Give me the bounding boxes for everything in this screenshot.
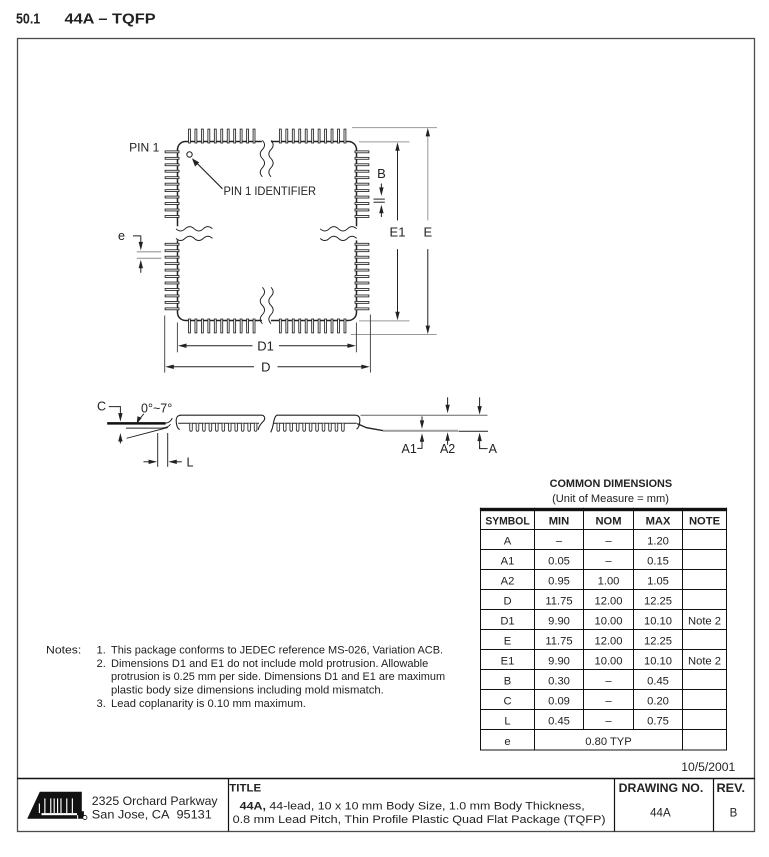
svg-text:COMMON DIMENSIONS: COMMON DIMENSIONS	[550, 478, 673, 490]
svg-text:0.80 TYP: 0.80 TYP	[585, 736, 631, 748]
svg-text:A: A	[489, 442, 498, 456]
svg-text:Note 2: Note 2	[688, 656, 721, 668]
svg-text:e: e	[504, 736, 510, 748]
svg-text:PIN 1: PIN 1	[129, 140, 160, 154]
svg-text:This package conforms to JEDEC: This package conforms to JEDEC reference…	[111, 644, 443, 656]
svg-text:TITLE: TITLE	[229, 782, 261, 794]
svg-text:–: –	[605, 536, 612, 548]
svg-text:11.75: 11.75	[545, 636, 572, 648]
svg-text:e: e	[118, 229, 125, 243]
svg-text:B: B	[504, 676, 511, 688]
svg-text:NOTE: NOTE	[689, 516, 721, 528]
svg-text:D1: D1	[500, 616, 514, 628]
svg-text:0.05: 0.05	[548, 556, 570, 568]
svg-text:44A, 44-lead, 10 x 10 mm Body: 44A, 44-lead, 10 x 10 mm Body Size, 1.0 …	[240, 800, 585, 812]
svg-text:–: –	[605, 556, 612, 568]
svg-text:10.00: 10.00	[595, 656, 623, 668]
svg-text:Lead coplanarity is 0.10 mm ma: Lead coplanarity is 0.10 mm maximum.	[111, 698, 306, 710]
svg-text:1.20: 1.20	[647, 536, 669, 548]
svg-text:0.8 mm Lead Pitch, Thin Profil: 0.8 mm Lead Pitch, Thin Profile Plastic …	[233, 814, 606, 826]
svg-text:10.10: 10.10	[644, 656, 672, 668]
svg-text:E1: E1	[390, 224, 406, 239]
svg-text:C: C	[97, 400, 106, 414]
svg-text:2325 Orchard Parkway: 2325 Orchard Parkway	[92, 794, 218, 808]
svg-text:D: D	[503, 596, 511, 608]
svg-text:1.05: 1.05	[647, 576, 669, 588]
svg-text:Dimensions D1 and E1 do not in: Dimensions D1 and E1 do not include mold…	[111, 658, 428, 670]
svg-text:PIN 1 IDENTIFIER: PIN 1 IDENTIFIER	[224, 184, 317, 198]
svg-text:protrusion is 0.25 mm per side: protrusion is 0.25 mm per side. Dimensio…	[111, 671, 445, 683]
svg-text:Notes:: Notes:	[46, 644, 81, 656]
svg-text:0.45: 0.45	[647, 676, 669, 688]
svg-text:0.09: 0.09	[548, 696, 570, 708]
svg-text:E1: E1	[501, 656, 515, 668]
svg-text:MAX: MAX	[646, 516, 671, 528]
svg-text:–: –	[605, 716, 612, 728]
svg-text:1.00: 1.00	[598, 576, 620, 588]
svg-text:plastic body size dimensions i: plastic body size dimensions including m…	[111, 685, 384, 697]
svg-text:0.95: 0.95	[548, 576, 570, 588]
svg-text:D1: D1	[257, 338, 274, 353]
svg-text:E: E	[504, 636, 511, 648]
svg-text:A: A	[504, 536, 512, 548]
svg-text:12.25: 12.25	[644, 636, 672, 648]
svg-text:9.90: 9.90	[548, 656, 570, 668]
svg-text:2.: 2.	[97, 658, 106, 670]
svg-text:12.25: 12.25	[644, 596, 672, 608]
svg-text:D: D	[261, 359, 270, 374]
svg-text:44A – TQFP: 44A – TQFP	[65, 11, 156, 27]
svg-text:10.00: 10.00	[595, 616, 623, 628]
svg-text:A2: A2	[501, 576, 515, 588]
svg-text:(Unit of Measure = mm): (Unit of Measure = mm)	[552, 493, 669, 505]
svg-text:SYMBOL: SYMBOL	[485, 516, 529, 528]
svg-text:–: –	[605, 696, 612, 708]
svg-text:10.10: 10.10	[644, 616, 672, 628]
svg-text:C: C	[503, 696, 511, 708]
svg-text:L: L	[187, 455, 194, 469]
svg-text:12.00: 12.00	[595, 636, 623, 648]
svg-text:–: –	[605, 676, 612, 688]
svg-text:REV.: REV.	[717, 783, 746, 795]
svg-text:12.00: 12.00	[595, 596, 623, 608]
svg-text:3.: 3.	[97, 698, 106, 710]
svg-text:E: E	[423, 224, 432, 239]
svg-text:Note 2: Note 2	[688, 616, 721, 628]
svg-text:44A: 44A	[650, 808, 671, 820]
svg-text:L: L	[504, 716, 510, 728]
svg-text:0°~7°: 0°~7°	[141, 402, 172, 416]
svg-text:11.75: 11.75	[545, 596, 572, 608]
svg-text:DRAWING NO.: DRAWING NO.	[619, 783, 704, 795]
svg-text:0.15: 0.15	[647, 556, 669, 568]
svg-text:B: B	[730, 808, 738, 820]
svg-text:50.1: 50.1	[16, 11, 40, 27]
svg-text:1.: 1.	[97, 644, 106, 656]
svg-text:San Jose, CA 95131: San Jose, CA 95131	[92, 808, 212, 822]
svg-text:9.90: 9.90	[548, 616, 570, 628]
svg-text:A1: A1	[501, 556, 515, 568]
svg-text:B: B	[377, 166, 386, 181]
svg-text:0.30: 0.30	[548, 676, 570, 688]
svg-text:0.20: 0.20	[647, 696, 669, 708]
svg-text:A1: A1	[402, 442, 417, 456]
svg-text:–: –	[556, 536, 563, 548]
svg-text:0.75: 0.75	[647, 716, 669, 728]
svg-text:A2: A2	[440, 442, 455, 456]
svg-text:0.45: 0.45	[548, 716, 570, 728]
svg-text:MIN: MIN	[549, 516, 570, 528]
svg-text:10/5/2001: 10/5/2001	[681, 762, 735, 774]
svg-text:NOM: NOM	[595, 516, 621, 528]
